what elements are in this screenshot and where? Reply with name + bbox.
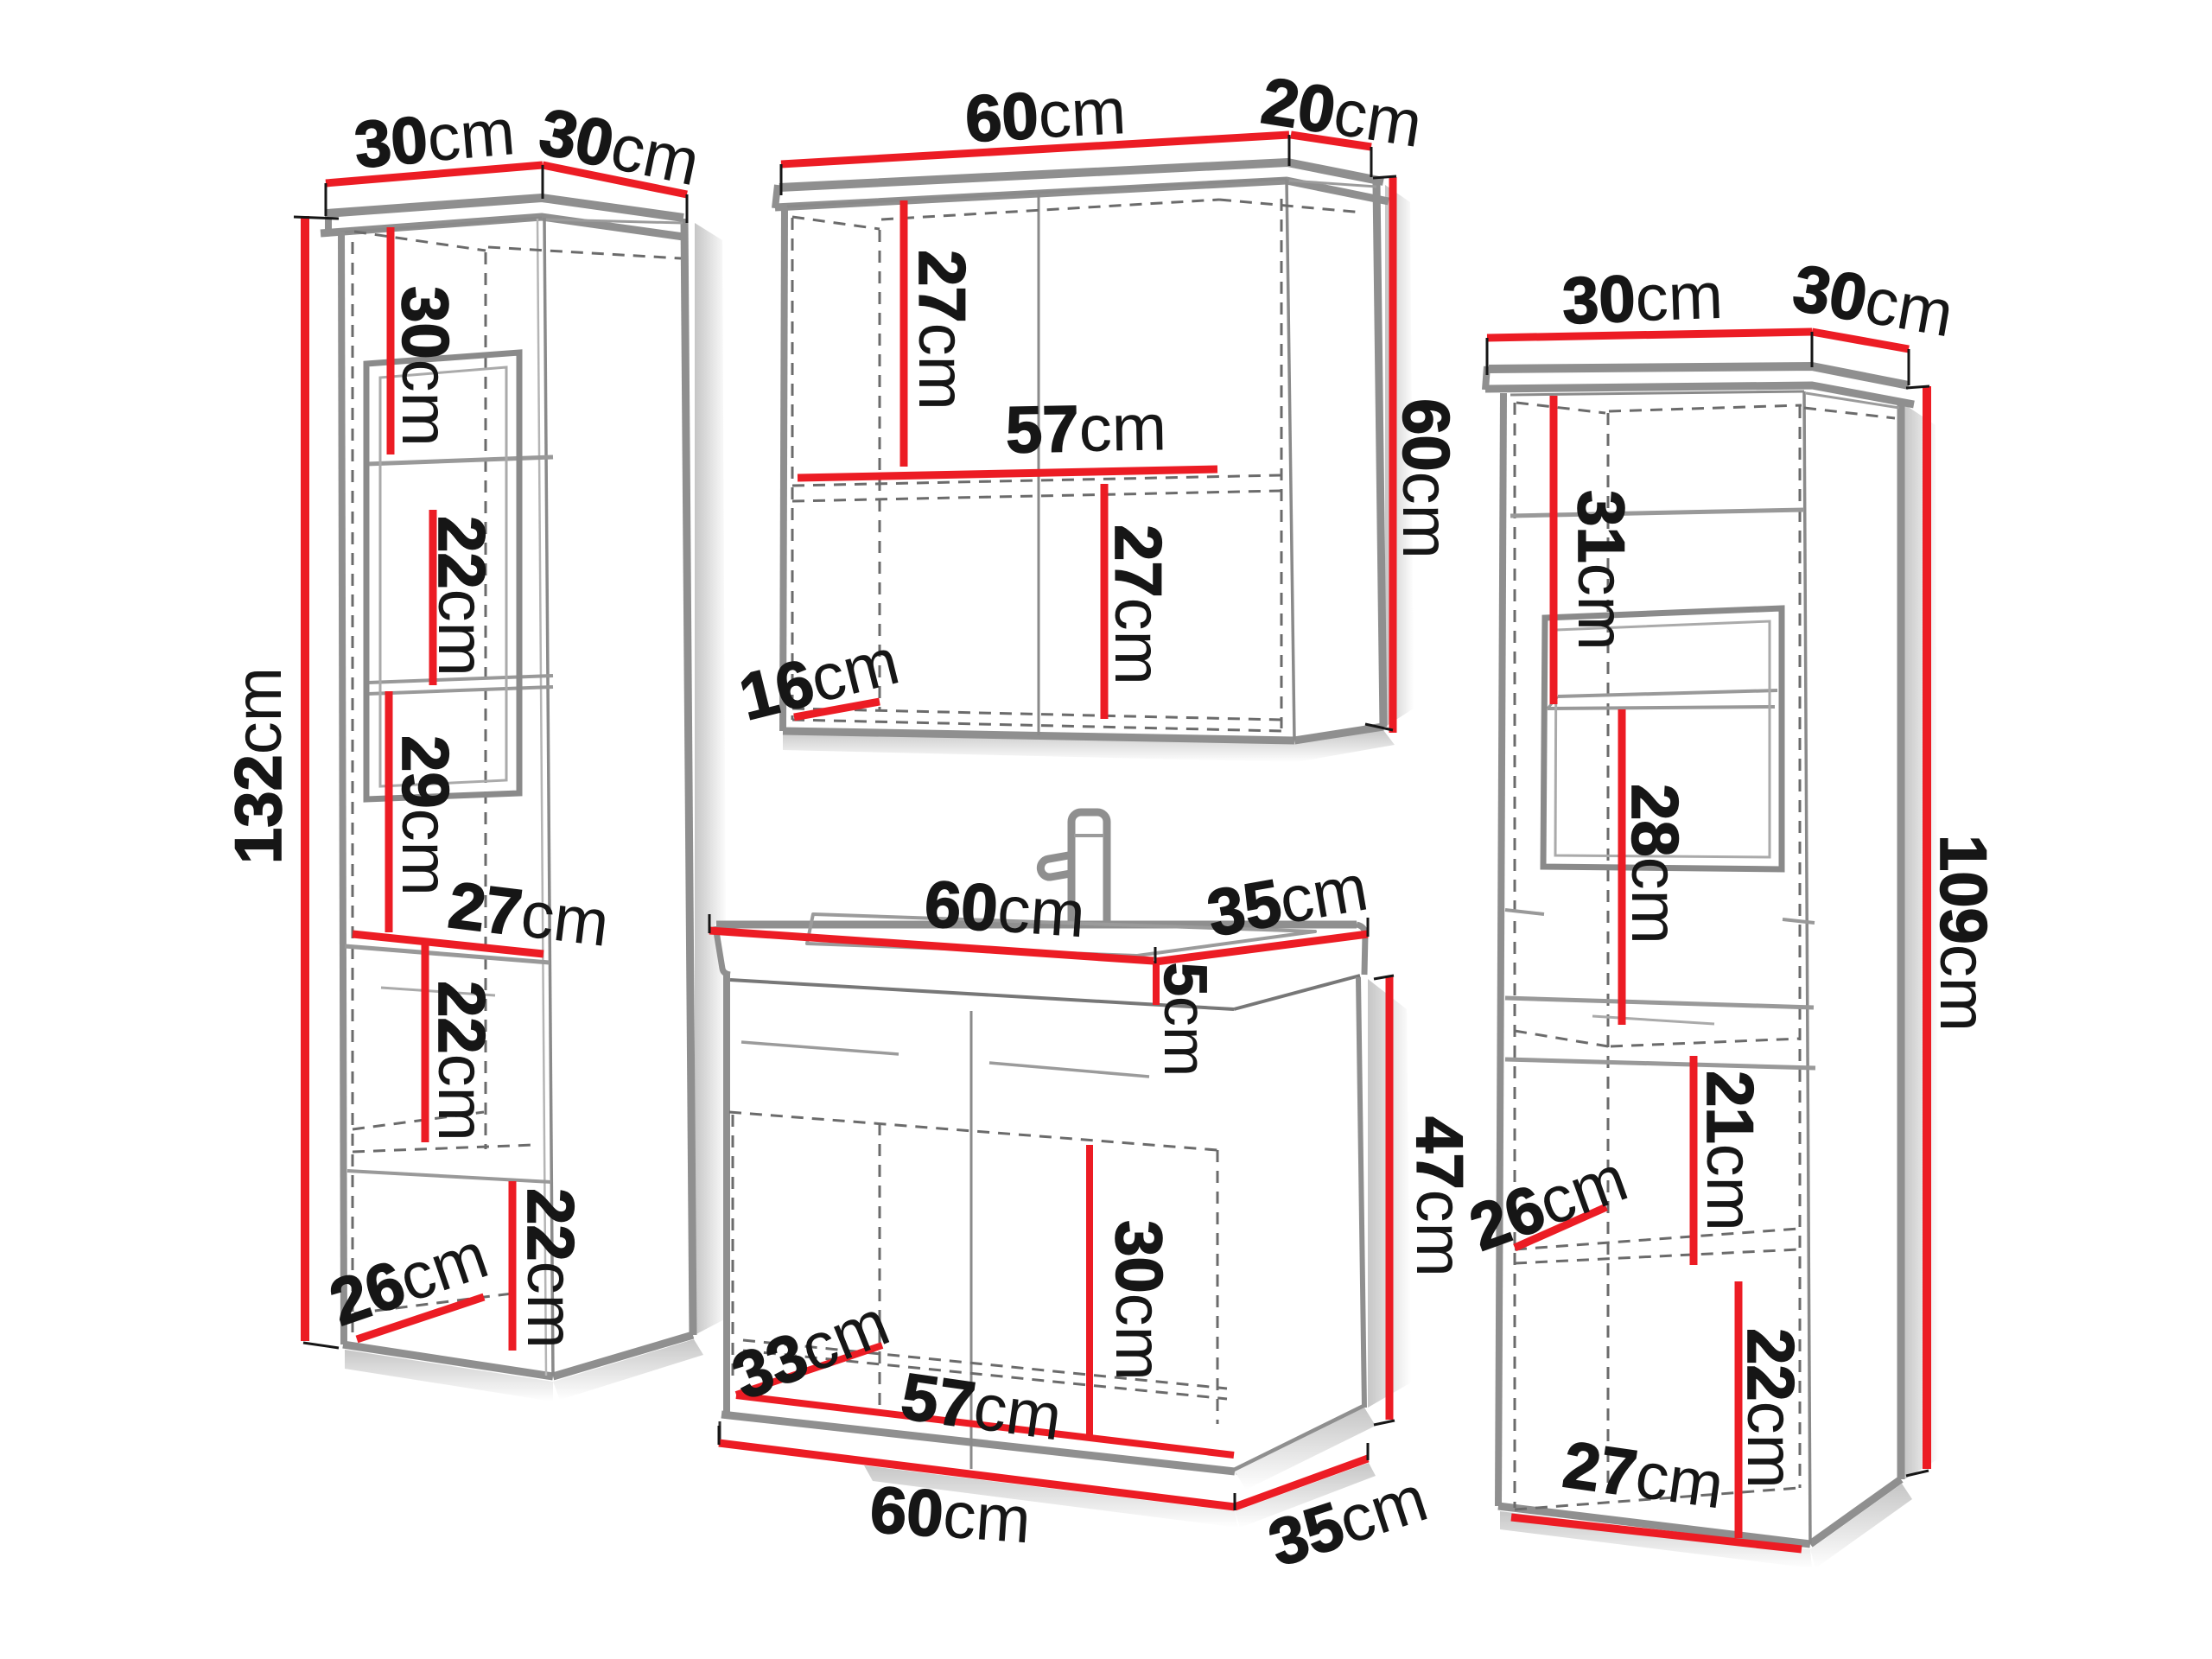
svg-text:22cm: 22cm bbox=[514, 1188, 588, 1349]
svg-text:22cm: 22cm bbox=[425, 516, 499, 677]
svg-text:21cm: 21cm bbox=[1694, 1071, 1767, 1231]
svg-text:30cm: 30cm bbox=[389, 286, 462, 447]
svg-text:57cm: 57cm bbox=[1005, 391, 1166, 467]
svg-text:27cm: 27cm bbox=[906, 250, 979, 410]
svg-text:60cm: 60cm bbox=[1389, 398, 1463, 559]
svg-text:132cm: 132cm bbox=[222, 667, 296, 864]
svg-text:60cm: 60cm bbox=[922, 867, 1087, 951]
svg-text:109cm: 109cm bbox=[1927, 835, 2000, 1032]
svg-text:28cm: 28cm bbox=[1618, 784, 1692, 944]
svg-text:60cm: 60cm bbox=[963, 74, 1128, 156]
svg-text:29cm: 29cm bbox=[389, 735, 462, 896]
svg-text:22cm: 22cm bbox=[1734, 1328, 1808, 1489]
svg-text:30cm: 30cm bbox=[1561, 258, 1725, 337]
svg-text:31cm: 31cm bbox=[1565, 490, 1638, 651]
svg-text:30cm: 30cm bbox=[352, 95, 518, 182]
svg-text:30cm: 30cm bbox=[1103, 1220, 1176, 1381]
svg-text:60cm: 60cm bbox=[868, 1472, 1033, 1557]
svg-text:5cm: 5cm bbox=[1152, 963, 1219, 1077]
svg-text:22cm: 22cm bbox=[425, 981, 499, 1141]
svg-text:27cm: 27cm bbox=[1102, 524, 1175, 685]
